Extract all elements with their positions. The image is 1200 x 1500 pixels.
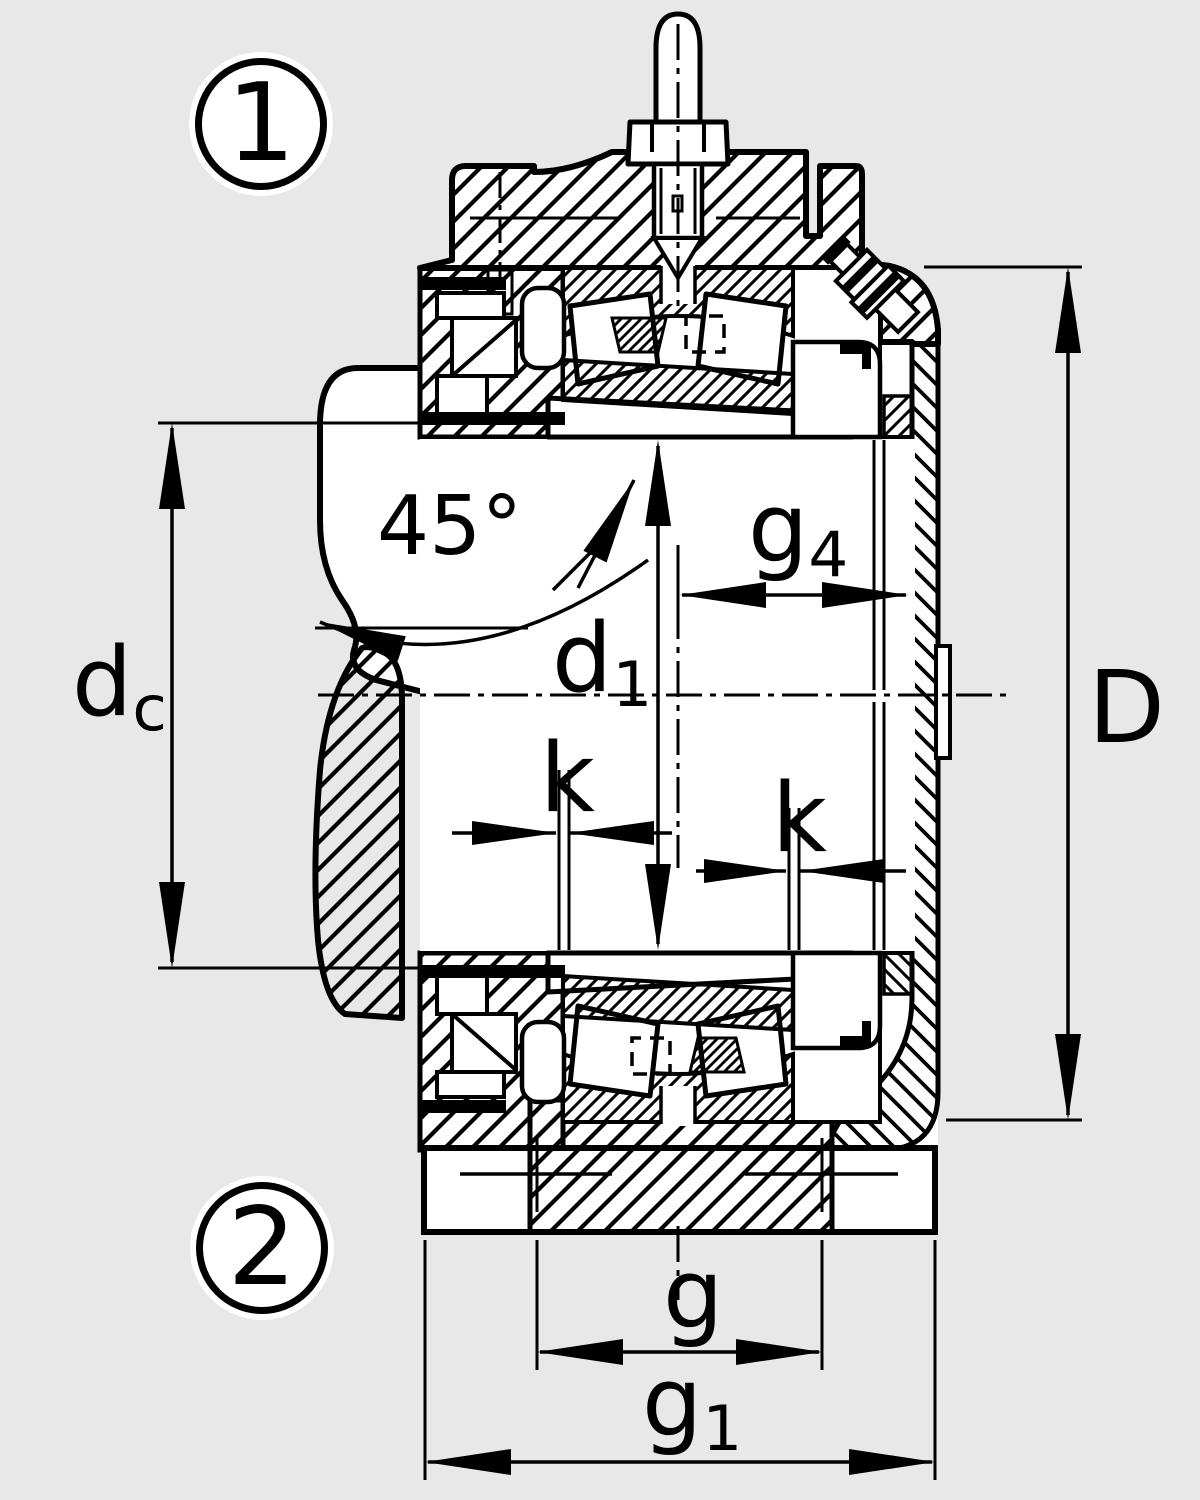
label-k-right: k: [772, 772, 827, 867]
callout-1-number: 1: [227, 70, 296, 178]
callout-2: 2: [196, 1182, 328, 1314]
label-g1: g1: [642, 1356, 742, 1451]
housing-section-drawing: [0, 0, 1200, 1500]
callout-1: 1: [195, 58, 327, 190]
label-g4: g4: [748, 482, 848, 577]
label-45deg: 45°: [377, 486, 522, 568]
callout-2-number: 2: [228, 1194, 297, 1302]
shaft-end-contour: [315, 368, 423, 1018]
label-D: D: [1088, 658, 1165, 758]
label-dc: dc: [72, 636, 167, 731]
label-k-left: k: [540, 732, 595, 827]
wall-lug: [936, 646, 950, 758]
label-g: g: [663, 1248, 723, 1343]
label-d1: d1: [552, 612, 652, 707]
technical-drawing-page: 1 2 dc 45° d1 g4 D k k g g1: [0, 0, 1200, 1500]
